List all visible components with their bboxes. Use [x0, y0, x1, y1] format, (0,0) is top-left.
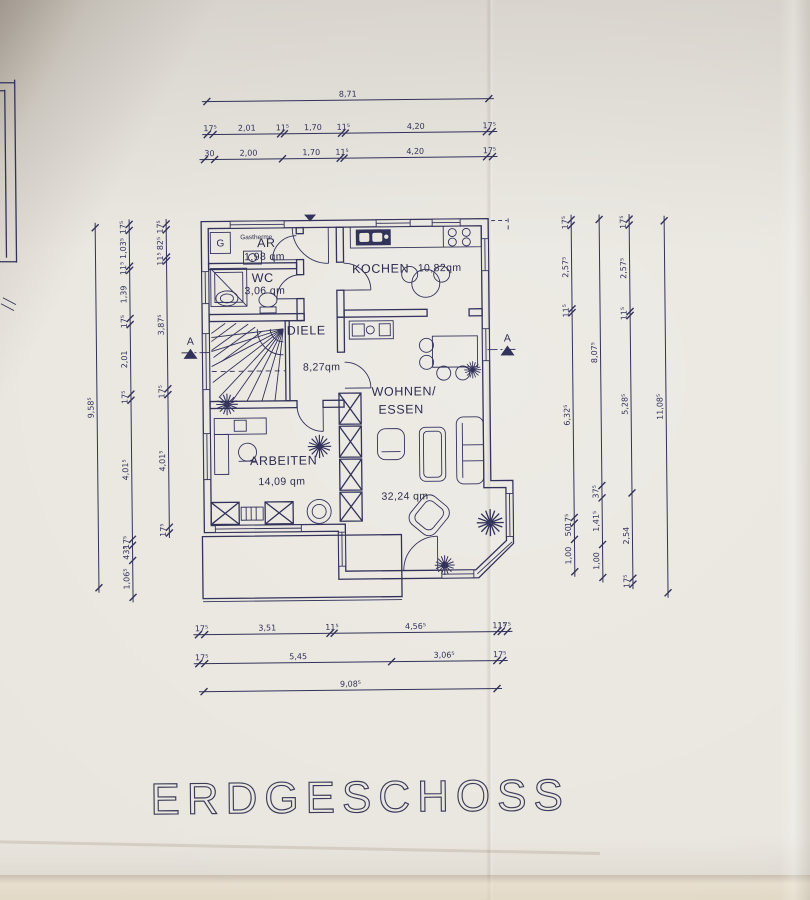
svg-text:5,45: 5,45: [289, 652, 307, 661]
dim-chain-top-upper: 17⁵2,0111⁵1,7011⁵4,2017⁵: [202, 121, 497, 138]
svg-text:8,71: 8,71: [339, 90, 357, 99]
svg-text:2,57⁵: 2,57⁵: [561, 257, 570, 278]
svg-text:1,06⁵: 1,06⁵: [122, 568, 131, 589]
svg-text:3,06⁵: 3,06⁵: [434, 651, 455, 660]
svg-text:1,03⁵: 1,03⁵: [119, 238, 128, 259]
room-label-wc: WC: [252, 271, 274, 285]
room-area-arbeiten: 14,09 qm: [258, 476, 305, 488]
sink-icon: [216, 291, 238, 306]
floor-plan-drawing: A A Gastherme G AR 1,98 qm WC 3,06 qm KO…: [0, 0, 810, 900]
bowl-chair-icon: [307, 499, 331, 523]
svg-text:17⁵: 17⁵: [493, 650, 506, 659]
svg-text:11,08⁵: 11,08⁵: [655, 394, 664, 420]
svg-text:17⁵: 17⁵: [203, 124, 216, 133]
room-area-diele: 8,27qm: [303, 361, 341, 373]
svg-text:17⁵: 17⁵: [120, 315, 129, 328]
plant-icon: [477, 509, 504, 536]
svg-text:17⁵: 17⁵: [622, 575, 631, 588]
svg-text:4,20: 4,20: [407, 122, 425, 131]
svg-text:37⁵: 37⁵: [591, 485, 600, 498]
wardrobe-column: [339, 393, 362, 521]
dim-chain-left-outer: 17⁵1,03⁵11⁵1,3917⁵2,0117⁵4,01⁵17⁵43⁵1,06…: [119, 219, 137, 602]
photographed-blueprint-sheet: A A Gastherme G AR 1,98 qm WC 3,06 qm KO…: [0, 0, 810, 900]
armchair-icon: [377, 429, 404, 460]
svg-text:9,58⁵: 9,58⁵: [86, 397, 95, 418]
svg-text:2,54: 2,54: [622, 527, 631, 545]
svg-text:4,20: 4,20: [406, 147, 424, 156]
svg-text:30: 30: [204, 149, 214, 158]
dim-chain-right-total: 11,08⁵: [654, 216, 672, 598]
room-label-ar: AR: [257, 236, 276, 250]
room-label-kochen: KOCHEN: [352, 261, 409, 276]
svg-text:17⁵: 17⁵: [120, 391, 129, 404]
svg-text:1,39: 1,39: [119, 286, 128, 304]
dim-chain-top-total: 8,71: [202, 88, 494, 105]
dim-chain-right-mid1: 8,07⁵37⁵1,41⁵1,00: [589, 214, 607, 582]
sofa-icon: [456, 417, 484, 484]
dim-chain-bottom-1: 17⁵3,5111⁵4,56⁵11⁵17⁵: [193, 621, 512, 638]
svg-text:2,00: 2,00: [240, 149, 258, 158]
room-label-diele: DIELE: [287, 323, 326, 337]
section-letter: A: [187, 336, 194, 348]
svg-text:3,51: 3,51: [258, 623, 276, 632]
svg-text:4,01⁵: 4,01⁵: [158, 450, 167, 471]
stove-icon: [448, 228, 470, 246]
dim-chain-top-lower: 302,001,7011⁵4,2017⁵: [199, 146, 497, 163]
svg-text:82⁵: 82⁵: [156, 237, 165, 250]
svg-text:1,70: 1,70: [302, 148, 320, 157]
svg-text:17⁵: 17⁵: [482, 121, 495, 130]
room-area-kochen: 10,82qm: [418, 262, 462, 274]
svg-text:17⁵: 17⁵: [498, 621, 511, 630]
svg-text:1,70: 1,70: [304, 123, 322, 132]
svg-text:9,08⁵: 9,08⁵: [340, 680, 361, 689]
svg-text:17⁵: 17⁵: [195, 624, 208, 633]
floor-plan-title: ERDGESCHOSS: [150, 771, 570, 824]
adjacent-sheet-fragment: [0, 80, 17, 311]
dim-chain-left-inner: 17⁵82⁵11⁵3,87⁵17⁵4,01⁵17⁵: [156, 219, 173, 538]
svg-text:1,00: 1,00: [592, 552, 601, 570]
svg-text:2,57⁵: 2,57⁵: [619, 258, 628, 279]
svg-text:17⁵: 17⁵: [195, 653, 208, 662]
svg-text:1,00: 1,00: [564, 547, 573, 565]
dim-chain-bottom-2: 17⁵5,453,06⁵17⁵: [194, 650, 508, 667]
svg-text:17⁵: 17⁵: [619, 215, 628, 228]
svg-text:17⁵: 17⁵: [483, 146, 496, 155]
room-label-wohnen: WOHNEN/: [372, 384, 437, 399]
room-area-ar: 1,98 qm: [244, 251, 285, 263]
svg-text:6,32⁵: 6,32⁵: [563, 405, 572, 426]
boiler-letter-label: G: [216, 238, 224, 249]
plant-icon: [464, 361, 481, 378]
room-label-essen: ESSEN: [378, 402, 424, 416]
spiral-stairs-icon: [211, 323, 286, 402]
svg-text:2,01: 2,01: [120, 350, 129, 368]
radiator-icon: [241, 507, 263, 520]
svg-text:8,07⁵: 8,07⁵: [590, 342, 599, 363]
terrace-paving: [202, 535, 402, 602]
coffee-table-icon: [419, 427, 446, 481]
section-marker-right: A: [487, 332, 517, 355]
svg-text:43⁵: 43⁵: [122, 546, 131, 559]
svg-text:50: 50: [564, 526, 573, 536]
room-area-wc: 3,06 qm: [244, 285, 285, 297]
dim-chain-bottom-total: 9,08⁵: [199, 678, 502, 695]
svg-text:17⁵: 17⁵: [119, 221, 128, 234]
dim-chain-right-mid2: 17⁵2,57⁵11⁵5,28⁵2,5417⁵: [619, 214, 637, 589]
svg-text:1,41⁵: 1,41⁵: [592, 511, 601, 532]
svg-text:4,01⁵: 4,01⁵: [121, 459, 130, 480]
svg-text:3,87⁵: 3,87⁵: [157, 314, 166, 335]
dim-chain-left-total: 9,58⁵: [85, 223, 103, 593]
room-area-wohnen-essen: 32,24 qm: [381, 490, 428, 502]
svg-text:2,01: 2,01: [238, 124, 256, 133]
kitchen-sink-icon: [356, 230, 390, 245]
svg-text:4,56⁵: 4,56⁵: [405, 622, 426, 631]
dim-chain-right-inner: 17⁵2,57⁵11⁵6,32⁵17⁵501,00: [561, 215, 579, 577]
section-letter: A: [504, 332, 511, 344]
svg-text:5,28⁵: 5,28⁵: [620, 394, 629, 415]
room-label-arbeiten: ARBEITEN: [250, 453, 317, 468]
sideboard-icon: [349, 321, 393, 339]
